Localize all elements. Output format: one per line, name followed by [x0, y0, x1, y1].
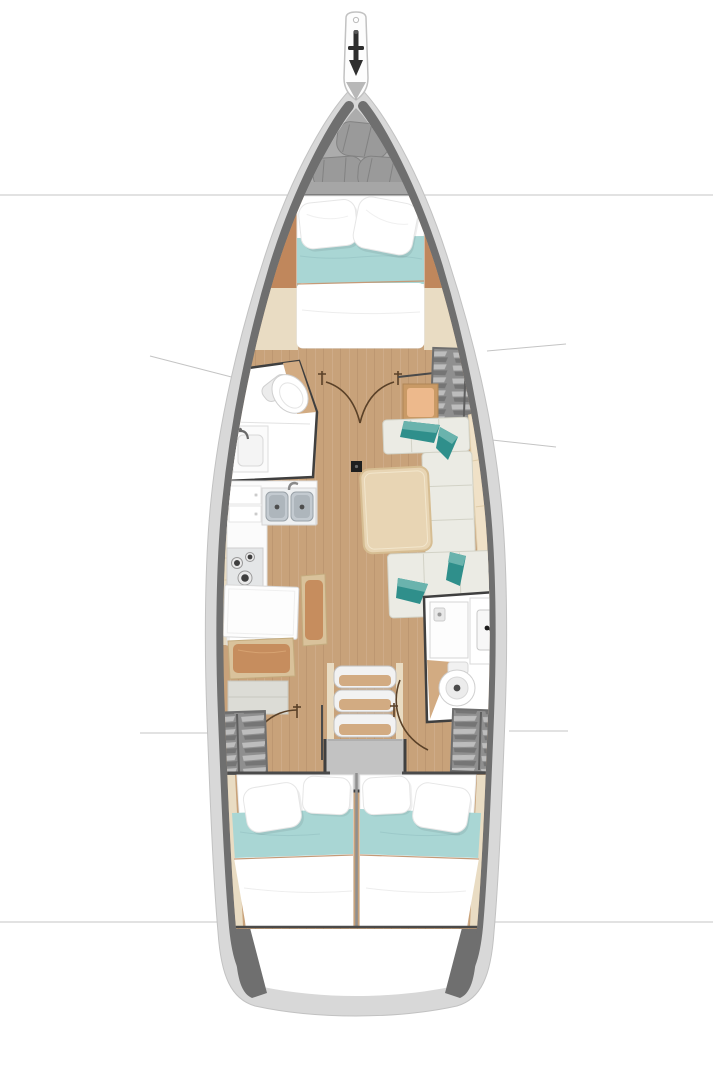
forward-berth [297, 195, 424, 348]
leader-line-wardrobe [487, 344, 566, 351]
pillow [302, 776, 353, 818]
mast-step-center [355, 465, 358, 468]
aft-berth-starboard [360, 775, 481, 927]
nav-seat [228, 638, 295, 679]
aft-cabins [210, 773, 503, 927]
nav-side-cushion [301, 574, 327, 646]
step-rail-starboard [396, 663, 403, 739]
floorplan-canvas [0, 0, 713, 1080]
double-sink-icon [262, 483, 316, 525]
boat-floorplan [0, 0, 713, 1080]
step-rail-port [327, 663, 334, 739]
interior [200, 106, 515, 929]
pillow [298, 198, 362, 253]
forward-seat [403, 384, 438, 421]
companionway-steps [334, 666, 396, 737]
shower-icon [430, 602, 468, 658]
leader-line-settee [492, 440, 556, 447]
pillow [362, 776, 413, 818]
chart-table [223, 585, 299, 640]
saloon-table [360, 466, 432, 553]
pillow [242, 781, 306, 837]
pillow [410, 781, 474, 837]
aft-berth-port [232, 775, 353, 927]
bow-fitting [344, 12, 368, 100]
